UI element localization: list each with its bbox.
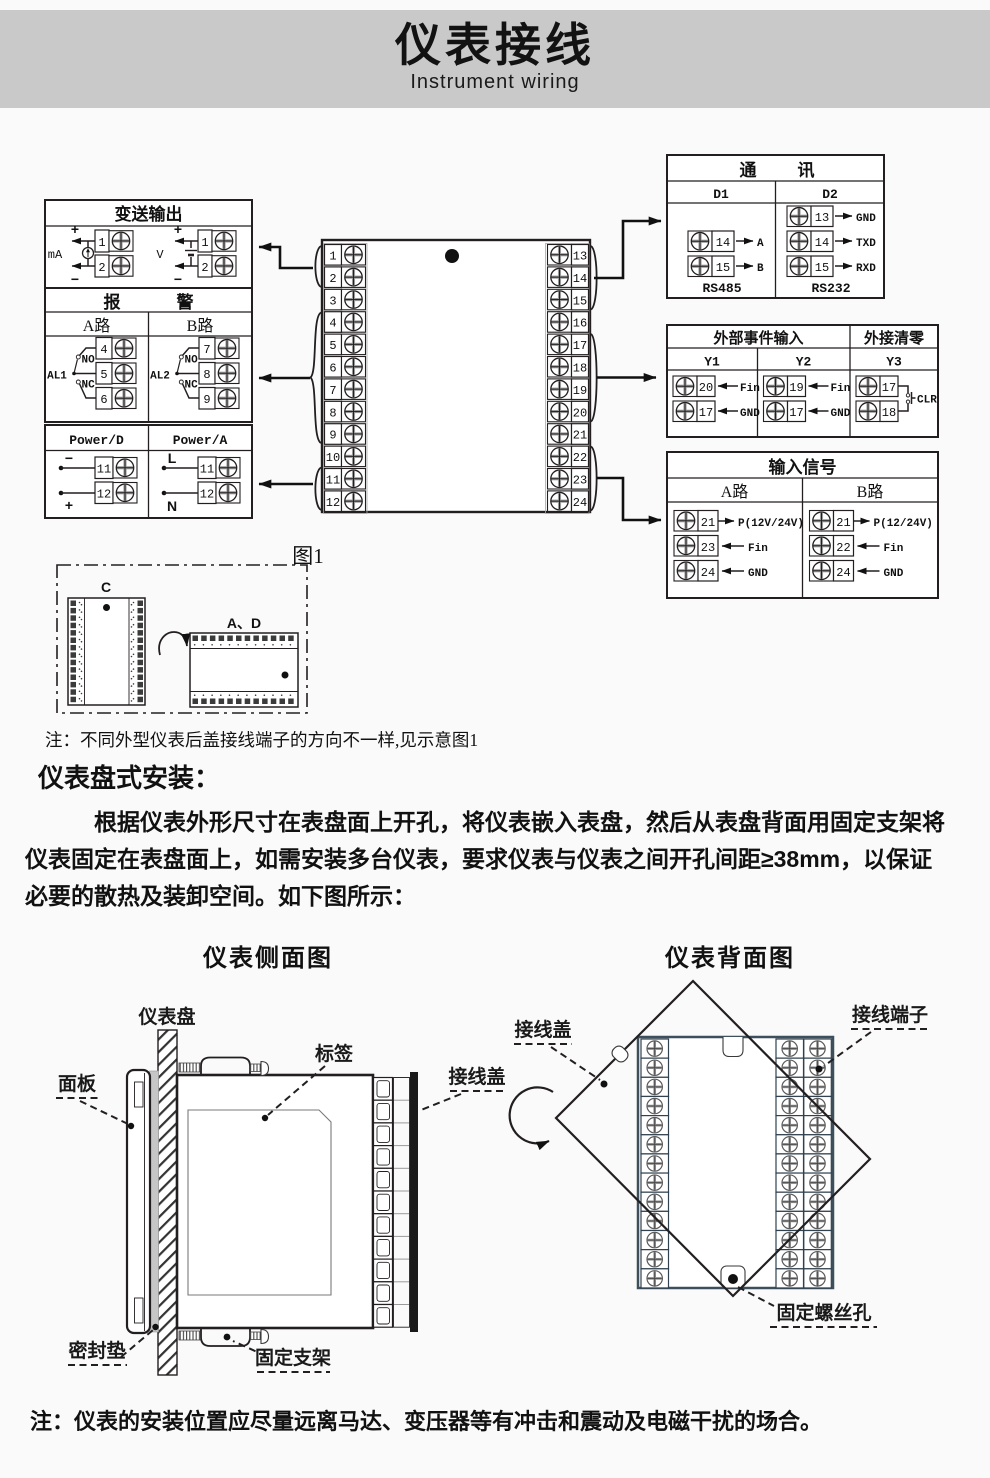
sideview-terminal-strip — [374, 1078, 410, 1328]
terminal-number: 10 — [326, 451, 340, 465]
alarm-col-b: B路 — [187, 317, 214, 335]
screw-icon — [804, 1250, 832, 1269]
plus-sign: + — [174, 221, 182, 237]
screw-terminal-icon — [548, 469, 572, 490]
clr-label: CLR — [917, 395, 937, 407]
clear-title: 外接清零 — [863, 329, 925, 347]
terminal-number: 11 — [97, 463, 111, 477]
no-label: NO — [82, 355, 96, 367]
no-label: NO — [185, 355, 199, 367]
transmitter-title: 变送输出 — [115, 204, 183, 224]
wiring-note: 注：不同外型仪表后盖接线端子的方向不一样,见示意图1 — [45, 727, 478, 752]
screw-icon — [641, 1096, 669, 1115]
terminal-number: 17 — [699, 406, 713, 420]
signal-label: P(12V/24V) — [738, 518, 804, 530]
event-input-box: 外部事件输入 外接清零 Y1 Y2 Y3 20 Fin 17 GND 19 Fi… — [667, 325, 938, 437]
terminal-number: 8 — [329, 406, 336, 420]
alarm-title: 警 — [176, 292, 194, 312]
side-view: 仪表盘 面板 标签 接线盖 密封垫 固定支架 — [56, 1005, 506, 1375]
terminal-number: 5 — [329, 339, 336, 353]
screw-icon — [776, 1116, 804, 1135]
screw-icon — [641, 1077, 669, 1096]
orientation-dot — [103, 604, 110, 611]
screw-terminal-icon — [342, 469, 366, 490]
terminal-number: 23 — [701, 541, 715, 555]
bottom-note: 注：仪表的安装位置应尽量远离马达、变压器等有冲击和震动及电磁干扰的场合。 — [30, 1404, 822, 1436]
terminal-number: 20 — [699, 381, 713, 395]
side-view-title: 仪表侧面图 — [203, 938, 333, 973]
minus-sign: − — [71, 271, 79, 287]
signal-label: Fin — [884, 543, 904, 555]
back-view-title: 仪表背面图 — [665, 938, 795, 973]
terminal-number: 14 — [815, 236, 829, 250]
power-box: Power/D Power/A − 11 + 12 L 11 N 12 — [45, 425, 252, 518]
terminal-number: 22 — [836, 541, 850, 555]
signal-label: GND — [740, 408, 760, 420]
terminal-number: 16 — [573, 317, 587, 331]
power-a-header: Power/A — [173, 433, 228, 448]
screw-terminal-icon — [342, 267, 366, 288]
relay-label: AL1 — [47, 371, 67, 383]
fixing-screw-hole — [728, 1274, 738, 1284]
orientation-dot — [445, 249, 459, 263]
alarm-col-a: A路 — [83, 317, 111, 335]
screw-terminal-icon — [548, 491, 572, 512]
top-screw-notch — [723, 1037, 743, 1057]
screw-icon — [641, 1116, 669, 1135]
screw-terminal-icon — [548, 446, 572, 467]
signal-label: A — [757, 238, 764, 250]
terminal-number: 2 — [201, 261, 208, 275]
communication-box: 通 讯 D1 D2 14 A 15 B RS485 13 GND 14 — [667, 155, 884, 298]
rs485-caption: RS485 — [702, 281, 741, 296]
terminal-number: 14 — [573, 272, 587, 286]
tag-label: 标签 — [315, 1042, 354, 1065]
screw-icon — [641, 1058, 669, 1077]
line-sign: L — [168, 450, 177, 466]
screw-icon — [804, 1135, 832, 1154]
plus-sign: + — [71, 221, 79, 237]
terminal-number: 2 — [329, 272, 336, 286]
screw-icon — [641, 1231, 669, 1250]
nc-label: NC — [82, 380, 96, 392]
panel-board-label: 仪表盘 — [137, 1005, 195, 1028]
signal-label: Fin — [748, 543, 768, 555]
screw-terminal-icon — [342, 491, 366, 512]
front-panel-label: 面板 — [58, 1072, 97, 1095]
screw-icon — [776, 1096, 804, 1115]
rs232-caption: RS232 — [811, 281, 850, 296]
signal-label: GND — [748, 568, 768, 580]
screw-icon — [804, 1116, 832, 1135]
screw-icon — [641, 1173, 669, 1192]
terminal-number: 15 — [815, 261, 829, 275]
screw-icon — [776, 1173, 804, 1192]
signal-label: RXD — [856, 263, 876, 275]
rotate-arrow-icon — [510, 1087, 553, 1143]
screw-icon — [776, 1211, 804, 1230]
terminal-number: 17 — [789, 406, 803, 420]
terminal-number: 1 — [329, 250, 336, 264]
terminal-number: 13 — [573, 250, 587, 264]
alarm-title: 报 — [104, 292, 121, 312]
bracket-label: 固定支架 — [255, 1346, 331, 1369]
screw-terminal-icon — [548, 245, 572, 266]
signal-label: P(12/24V) — [874, 518, 933, 530]
signal-label: TXD — [856, 238, 876, 250]
terminal-number: 7 — [203, 343, 210, 357]
screw-terminal-icon — [342, 357, 366, 378]
screw-icon — [776, 1154, 804, 1173]
terminal-number: 9 — [203, 393, 210, 407]
screw-icon — [804, 1173, 832, 1192]
input-col-a: A路 — [721, 483, 749, 501]
screw-icon — [804, 1231, 832, 1250]
screw-icon — [641, 1250, 669, 1269]
alarm-box: 报 警 A路 B路 4 5 6 NO NC AL1 — [45, 288, 252, 422]
screw-icon — [776, 1250, 804, 1269]
front-bezel — [127, 1070, 150, 1333]
screw-terminal-icon — [548, 401, 572, 422]
label-area — [188, 1110, 331, 1295]
back-view: 接线盖 接线端子 固定螺丝孔 — [510, 981, 929, 1327]
panel-wall — [158, 1030, 177, 1375]
terminal-cover-bar — [410, 1072, 418, 1332]
terminal-number: 9 — [329, 429, 336, 443]
connector-c-label: C — [101, 579, 111, 595]
back-wiring-cover-label: 接线盖 — [514, 1018, 571, 1041]
terminal-number: 3 — [329, 294, 336, 308]
input-col-b: B路 — [857, 483, 884, 501]
terminal-number: 24 — [701, 566, 715, 580]
terminal-number: 17 — [882, 381, 896, 395]
signal-label: GND — [884, 568, 904, 580]
ma-label: mA — [48, 248, 63, 262]
relay-label: AL2 — [150, 371, 170, 383]
signal-label: GND — [856, 213, 876, 225]
terminal-number: 19 — [573, 384, 587, 398]
screw-icon — [804, 1077, 832, 1096]
terminal-number: 21 — [701, 516, 715, 530]
terminal-label: 接线端子 — [852, 1003, 928, 1026]
signal-label: Fin — [740, 383, 760, 395]
page: 仪表接线 Instrument wiring — [0, 0, 990, 1478]
screw-icon — [804, 1039, 832, 1058]
input-signal-title: 输入信号 — [769, 457, 837, 477]
terminal-number: 15 — [716, 261, 730, 275]
screw-terminal-icon — [342, 446, 366, 467]
center-terminal-block: 123456789101112 131415161718192021222324 — [259, 221, 661, 520]
screw-icon — [641, 1154, 669, 1173]
screw-terminal-icon — [342, 289, 366, 310]
nc-label: NC — [185, 380, 199, 392]
orientation-dot — [282, 672, 289, 679]
terminal-number: 19 — [789, 381, 803, 395]
install-heading: 仪表盘式安装： — [38, 758, 220, 795]
neutral-sign: N — [167, 498, 177, 514]
screw-terminal-icon — [342, 379, 366, 400]
terminal-number: 24 — [836, 566, 850, 580]
connector-ad-label: A、D — [227, 615, 261, 631]
terminal-number: 6 — [100, 393, 107, 407]
terminal-number: 11 — [326, 474, 340, 488]
screw-icon — [641, 1269, 669, 1288]
terminal-number: 20 — [573, 406, 587, 420]
terminal-number: 12 — [200, 488, 214, 502]
terminal-number: 21 — [836, 516, 850, 530]
terminal-number: 23 — [573, 474, 587, 488]
comm-col-d1: D1 — [713, 187, 729, 202]
signal-label: B — [757, 263, 764, 275]
terminal-number: 22 — [573, 451, 587, 465]
minus-sign: − — [65, 450, 73, 466]
terminal-number: 7 — [329, 384, 336, 398]
input-signal-box: 输入信号 A路 B路 21 P(12V/24V) 23 Fin 24 GND 2… — [667, 452, 938, 598]
terminal-number: 2 — [98, 261, 105, 275]
signal-label: Fin — [831, 383, 851, 395]
minus-sign: − — [174, 271, 182, 287]
screw-terminal-icon — [548, 312, 572, 333]
screw-terminal-icon — [548, 424, 572, 445]
terminal-number: 12 — [326, 496, 340, 510]
screw-terminal-icon — [548, 267, 572, 288]
top-bracket — [201, 1058, 250, 1076]
terminal-number: 5 — [100, 368, 107, 382]
terminal-number: 12 — [97, 488, 111, 502]
transmitter-output-box: 变送输出 + 1 2 − mA + 1 2 — [45, 200, 252, 290]
terminal-number: 4 — [329, 317, 336, 331]
terminal-number: 14 — [716, 236, 730, 250]
screw-icon — [776, 1269, 804, 1288]
terminal-number: 15 — [573, 294, 587, 308]
v-label: V — [156, 248, 164, 262]
y3-header: Y3 — [886, 355, 902, 370]
screw-terminal-icon — [342, 424, 366, 445]
screw-terminal-icon — [548, 357, 572, 378]
screw-terminal-icon — [548, 289, 572, 310]
screw-icon — [776, 1039, 804, 1058]
screw-terminal-icon — [342, 334, 366, 355]
screw-icon — [641, 1135, 669, 1154]
figure1-caption: 图1 — [292, 544, 324, 568]
terminal-number: 1 — [201, 236, 208, 250]
screw-terminal-icon — [548, 334, 572, 355]
install-paragraph: 根据仪表外形尺寸在表盘面上开孔，将仪表嵌入表盘，然后从表盘背面用固定支架将仪表固… — [25, 804, 955, 914]
terminal-number: 1 — [98, 236, 105, 250]
screw-terminal-icon — [342, 401, 366, 422]
screw-terminal-icon — [342, 245, 366, 266]
rotate-arrow-icon — [159, 632, 187, 655]
comm-col-d2: D2 — [822, 187, 838, 202]
screw-icon — [776, 1192, 804, 1211]
power-d-header: Power/D — [69, 433, 124, 448]
screw-icon — [804, 1154, 832, 1173]
screw-terminal-icon — [342, 312, 366, 333]
screw-terminal-icon — [548, 379, 572, 400]
screw-icon — [776, 1135, 804, 1154]
screw-icon — [804, 1269, 832, 1288]
terminal-number: 17 — [573, 339, 587, 353]
wiring-cover-label: 接线盖 — [448, 1065, 505, 1088]
y1-header: Y1 — [704, 355, 720, 370]
y2-header: Y2 — [796, 355, 812, 370]
comm-title: 讯 — [798, 161, 815, 180]
figure1: 图1 C A、D — [57, 544, 324, 713]
event-title: 外部事件输入 — [712, 329, 803, 347]
terminal-number: 11 — [200, 463, 214, 477]
terminal-number: 18 — [882, 406, 896, 420]
terminal-number: 24 — [573, 496, 587, 510]
plus-sign: + — [65, 497, 73, 513]
terminal-number: 21 — [573, 429, 587, 443]
terminal-number: 18 — [573, 362, 587, 376]
terminal-number: 8 — [203, 368, 210, 382]
screw-icon — [641, 1039, 669, 1058]
comm-title: 通 — [740, 161, 757, 180]
screw-hole-label: 固定螺丝孔 — [776, 1301, 871, 1324]
terminal-number: 13 — [815, 211, 829, 225]
signal-label: GND — [831, 408, 851, 420]
terminal-number: 6 — [329, 362, 336, 376]
gasket-label: 密封垫 — [68, 1339, 125, 1362]
terminal-number: 4 — [100, 343, 107, 357]
